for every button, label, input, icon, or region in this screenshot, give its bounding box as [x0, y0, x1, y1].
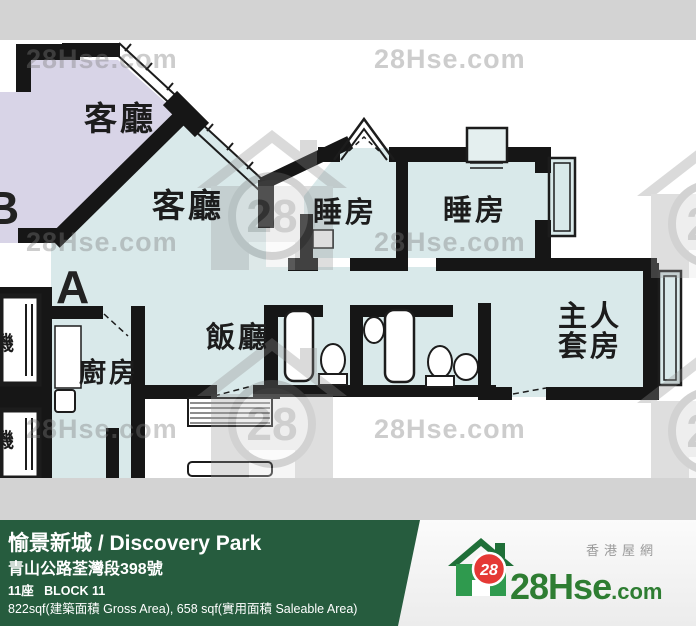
- label-lift-2: 機: [0, 429, 17, 452]
- watermark-text: 28Hse.com: [26, 44, 178, 74]
- property-address: 青山公路荃灣段398號: [8, 555, 163, 579]
- brand-tagline: 香港屋網: [586, 540, 658, 559]
- kitchen-stove: [55, 390, 75, 412]
- label-living-a: 客廳: [152, 187, 224, 224]
- label-unit-a: A: [56, 261, 89, 313]
- property-area: 822sqf(建築面積 Gross Area), 658 sqf(實用面積 Sa…: [8, 598, 357, 617]
- label-master-line1: 主人: [558, 300, 622, 333]
- label-living-b: 客廳: [84, 100, 156, 137]
- label-lift-1: 機: [0, 332, 17, 355]
- label-bedroom-1: 睡房: [313, 196, 377, 229]
- bedroom2-box-window: [467, 128, 507, 168]
- basin-2: [454, 354, 478, 380]
- label-master-line2: 套房: [558, 330, 622, 363]
- property-info-bar: 愉景新城 / Discovery Park 青山公路荃灣段398號 11座 BL…: [0, 520, 696, 626]
- brand-logo-area: 香港屋網 28 28Hse.com: [396, 520, 696, 626]
- watermark-text: 28Hse.com: [26, 227, 178, 257]
- label-unit-b: B: [0, 182, 19, 234]
- floor-plan-image: 28: [0, 0, 696, 626]
- brand-house-icon: 28: [448, 536, 516, 600]
- toilet-2: [426, 346, 454, 387]
- label-kitchen: 廚房: [79, 357, 139, 388]
- basin-1: [364, 317, 384, 343]
- bathtub-2: [385, 310, 414, 382]
- brand-name-suffix: .com: [611, 579, 662, 604]
- property-title: 愉景新城 / Discovery Park: [8, 527, 261, 557]
- watermark-text: 28Hse.com: [374, 227, 526, 257]
- label-dining: 飯廳: [206, 320, 270, 354]
- watermark-text: 28Hse.com: [374, 44, 526, 74]
- floor-plan-svg: 28: [0, 0, 696, 520]
- property-block: 11座 BLOCK 11: [8, 580, 105, 599]
- top-gray-band: [0, 0, 696, 40]
- bottom-gray-band: [0, 478, 696, 520]
- brand-name: 28Hse.com: [510, 566, 662, 608]
- brand-name-main: 28Hse: [510, 566, 611, 607]
- watermark-text: 28Hse.com: [374, 414, 526, 444]
- brand-badge-number: 28: [479, 562, 498, 579]
- master-bay-fill: [658, 271, 682, 385]
- kitchen-counter: [55, 326, 81, 388]
- watermark-text: 28Hse.com: [26, 414, 178, 444]
- label-bedroom-2: 睡房: [443, 194, 507, 227]
